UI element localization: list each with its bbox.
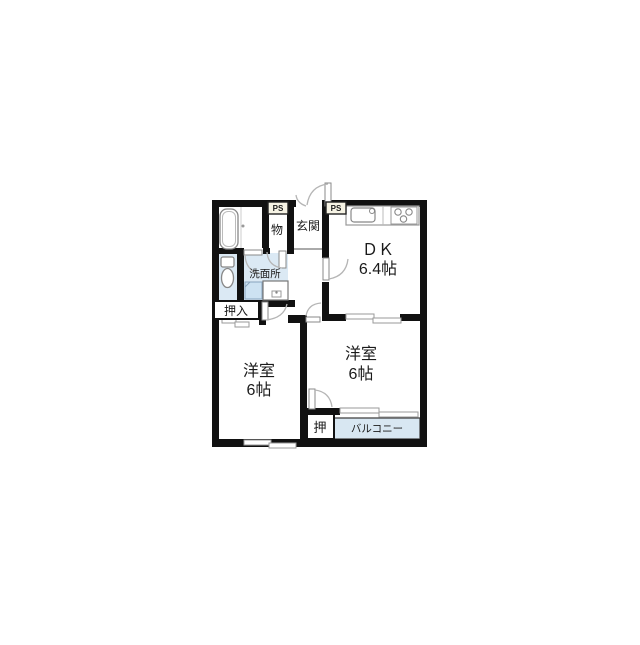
wall-dk-bottom-right [400, 314, 420, 321]
bedroom-right-size-label: 6帖 [349, 365, 374, 383]
wall-left [212, 200, 219, 447]
bedroom-right-door-arc [306, 303, 321, 316]
floor-plan-page: PS PS ＤＫ 6.4帖 洋室 6帖 洋室 6帖 玄関 物 洗面所 押入 押 … [0, 0, 640, 640]
oshiire-label: 押入 [224, 304, 248, 318]
kitchen-sink-icon [351, 208, 375, 222]
vanity-faucet-icon [275, 291, 277, 293]
dk-bedroom-pane1 [346, 314, 374, 319]
washroom-door-leaf [279, 251, 286, 268]
wall-toilet-washroom [237, 253, 244, 300]
storage-label: 物 [271, 223, 283, 237]
bedroom-left-label: 洋室 [243, 362, 275, 380]
wall-dk-hall-lower [322, 282, 329, 321]
bedroom-left-door-leaf [262, 302, 268, 320]
bedroom-left-size-label: 6帖 [247, 381, 272, 399]
balcony-label: バルコニー [351, 423, 403, 435]
oshi-closet-door-arc [315, 390, 332, 407]
dk-label: ＤＫ [362, 242, 394, 259]
dk-size-label: 6.4帖 [359, 260, 397, 278]
bath-door-leaf [244, 250, 262, 255]
wall-right [420, 200, 427, 447]
bath-door-handle [242, 225, 245, 228]
oshi-label: 押 [313, 420, 326, 435]
bottom-window-pane1 [244, 440, 271, 445]
toilet [221, 257, 234, 288]
entrance-label: 玄関 [296, 218, 320, 233]
bath-vent-icon [246, 202, 257, 206]
dk-bedroom-pane2 [373, 318, 401, 323]
toilet-tank [221, 257, 234, 267]
bottom-window-pane2 [269, 443, 296, 448]
balcony-window-pane2 [379, 412, 418, 417]
floor-plan-svg: PS PS ＤＫ 6.4帖 洋室 6帖 洋室 6帖 玄関 物 洗面所 押入 押 … [0, 0, 640, 640]
bedroom-right-label: 洋室 [345, 345, 377, 363]
ps-right-label: PS [331, 204, 342, 213]
toilet-bowl [222, 269, 234, 288]
entrance-step-line [294, 248, 322, 250]
dk-door-leaf [323, 258, 329, 280]
wall-bedroom-divider [300, 315, 307, 439]
balcony-window-pane1 [340, 408, 379, 413]
entrance-door-arc-small [296, 195, 306, 206]
kitchen [346, 206, 419, 225]
washroom-label: 洗面所 [249, 268, 281, 280]
wall-dk-bottom-left [329, 314, 346, 321]
dk-door-arc [329, 259, 348, 279]
bedroom-right-door-leaf [306, 317, 320, 322]
oshi-closet-door-leaf [309, 389, 315, 409]
ps-left-label: PS [273, 204, 284, 213]
oshiire-slide-pane2 [235, 322, 249, 327]
